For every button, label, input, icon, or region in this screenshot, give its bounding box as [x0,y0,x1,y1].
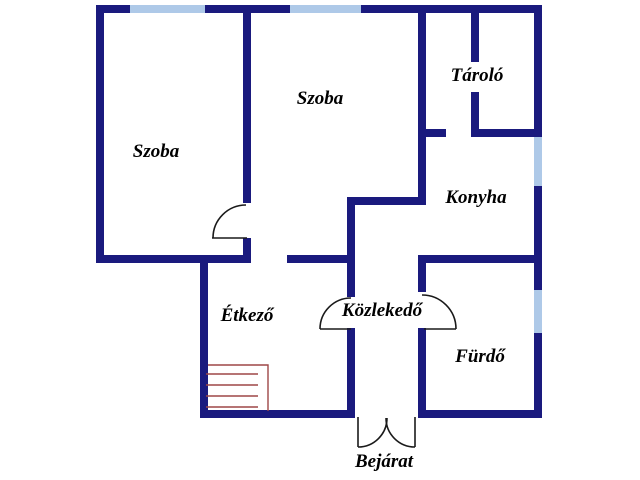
room-label-tarolo: Tároló [451,65,504,87]
wall-szoba1-bottom [96,255,251,263]
wall-tarolo-divider-upper [471,5,479,62]
floor-plan: Szoba Szoba Tároló Konyha Étkező Közleke… [0,0,640,480]
wall-corridor-right-lower [418,328,426,418]
door-arc-furdo-icon [422,295,456,329]
wall-corridor-left-upper [347,197,355,297]
wall-etkezo-bottom [200,410,355,418]
room-label-etkezo: Étkező [221,305,274,327]
wall-right-exterior-bottom [534,333,542,418]
wall-corridor-top [348,197,426,205]
wall-szoba-divider [243,5,251,203]
wall-corridor-left-lower [347,328,355,418]
window-konyha-icon [534,137,542,186]
room-label-szoba-2: Szoba [297,88,343,110]
room-label-furdo: Fürdő [455,346,505,368]
room-label-kozlekedo: Közlekedő [342,300,422,322]
wall-middle-right [418,5,426,205]
door-arc-szoba-divider-icon [213,205,246,238]
window-szoba2-icon [290,5,361,13]
windows [130,5,542,333]
wall-tarolo-bottom-right [471,129,542,137]
window-szoba1-icon [130,5,205,13]
room-label-szoba-1: Szoba [133,141,179,163]
stairs-outline-icon [208,365,268,411]
wall-konyha-bottom [418,255,542,263]
wall-furdo-bottom [418,410,542,418]
wall-szoba2-bottom [287,255,355,263]
window-furdo-icon [534,290,542,333]
wall-left-exterior [96,5,104,262]
wall-etkezo-left [200,255,208,418]
wall-right-exterior-middle [534,186,542,290]
stairs [206,365,268,411]
floor-plan-drawing [0,0,640,480]
room-label-bejarat: Bejárat [355,451,413,473]
room-label-konyha: Konyha [445,187,506,209]
wall-tarolo-bottom-left [418,129,446,137]
door-arc-entrance-left-icon [358,418,387,447]
door-arc-entrance-right-icon [386,418,415,447]
wall-right-exterior-top [534,5,542,137]
